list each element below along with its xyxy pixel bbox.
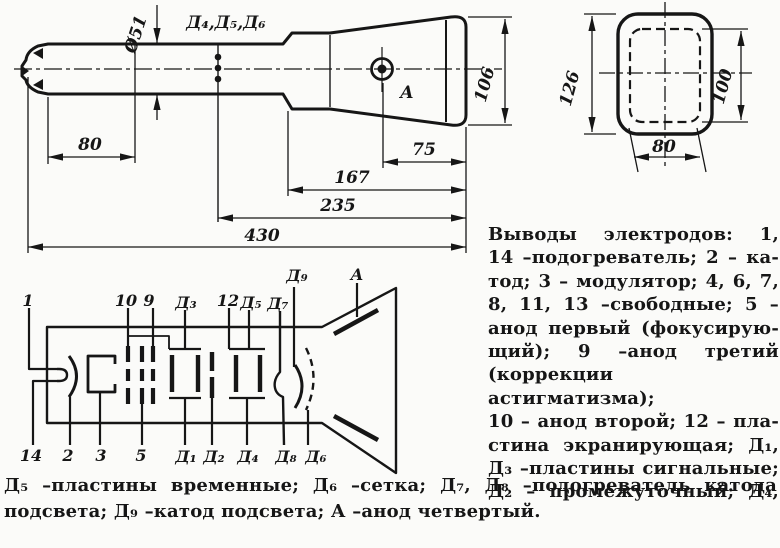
d6-grid-arc (306, 348, 314, 410)
caption-line: 10 – анод второй; 12 – пла- (488, 410, 779, 433)
label-d2: Д₂ (202, 447, 224, 466)
label-d4: Д₄ (236, 447, 258, 466)
connector-line (128, 336, 169, 349)
label-d5: Д₅ (239, 293, 261, 312)
caption-line: 8, 11, 13 –свободные; 5 – (488, 293, 779, 316)
d9-cathode-arc (295, 365, 302, 408)
figure-scan: Ø51 Д₄,Д₅,Д₆ 80 75 167 235 430 106 А (0, 0, 780, 544)
pin14-lead (33, 381, 57, 445)
dim-75-label: 75 (412, 140, 436, 160)
electrode-schematic: 1 10 9 Д₃ 12 Д₅ Д₇ Д₉ А 14 2 3 5 Д₁ Д₂ Д… (20, 265, 396, 473)
dim-235-label: 235 (319, 196, 356, 216)
label-pin2: 2 (61, 446, 73, 465)
label-d8: Д₈ (274, 447, 296, 466)
label-anode: А (349, 265, 363, 284)
dim-126-label: 126 (556, 69, 585, 109)
taps-label: Д₄,Д₅,Д₆ (185, 13, 266, 33)
front-dim-80-label: 80 (651, 137, 676, 157)
label-pin14: 14 (20, 446, 42, 465)
front-view: 126 100 80 (556, 2, 752, 172)
anode-cylinders (128, 346, 153, 404)
label-pin1: 1 (22, 291, 33, 310)
label-d3: Д₃ (174, 293, 196, 312)
caption-line: (коррекции астигматизма); (488, 363, 779, 410)
anode-button-dot (378, 65, 387, 74)
pin1-lead (29, 308, 57, 369)
label-pin10: 10 (115, 291, 137, 310)
label-d6: Д₆ (304, 447, 326, 466)
tap-dot-2 (215, 65, 222, 72)
base-pin-bottom (33, 79, 43, 90)
cathode-arc (69, 356, 77, 397)
caption-line: тод; 3 – модулятор; 4, 6, 7, (488, 270, 779, 293)
dim-80-label: 80 (77, 135, 102, 155)
caption-line: подсвета; Д₉ –катод подсвета; А –анод че… (4, 499, 777, 525)
dim-430-label: 430 (244, 226, 280, 246)
tip-mark (22, 66, 29, 76)
caption-line: Выводы электродов: 1, (488, 223, 779, 246)
dia-label: Ø51 (120, 13, 151, 57)
tap-dot-3 (215, 76, 222, 83)
label-d1: Д₁ (174, 447, 196, 466)
label-d7: Д₇ (266, 294, 288, 313)
d7-d8-heater (275, 311, 284, 445)
label-pin5: 5 (135, 446, 146, 465)
base-pin-top (33, 48, 43, 59)
anode-a-label: А (398, 83, 414, 103)
dim-106-label: 106 (471, 65, 500, 105)
dim-167-label: 167 (334, 168, 370, 188)
caption-line: анод первый (фокусирую- (488, 317, 779, 340)
caption-bottom: Д₅ –пластины временные; Д₆ –сетка; Д₇, Д… (4, 473, 777, 524)
caption-line: стина экранирующая; Д₁, (488, 434, 779, 457)
caption-line: 14 –подогреватель; 2 – ка- (488, 246, 779, 269)
label-pin3: 3 (95, 446, 106, 465)
tube-outline (22, 17, 466, 126)
caption-line: щий); 9 –анод третий (488, 340, 779, 363)
caption-column: Выводы электродов: 1, 14 –подогреватель;… (488, 223, 779, 504)
tap-dot-1 (215, 54, 222, 61)
side-view: Ø51 Д₄,Д₅,Д₆ 80 75 167 235 430 106 А (14, 5, 512, 253)
label-pin9: 9 (143, 291, 154, 310)
label-d9: Д₉ (285, 266, 307, 285)
dimension-lines (28, 17, 512, 247)
caption-line: Д₅ –пластины временные; Д₆ –сетка; Д₇, Д… (4, 473, 777, 499)
label-pin12: 12 (217, 291, 239, 310)
heater-hairpin (57, 369, 67, 381)
modulator (88, 356, 115, 392)
